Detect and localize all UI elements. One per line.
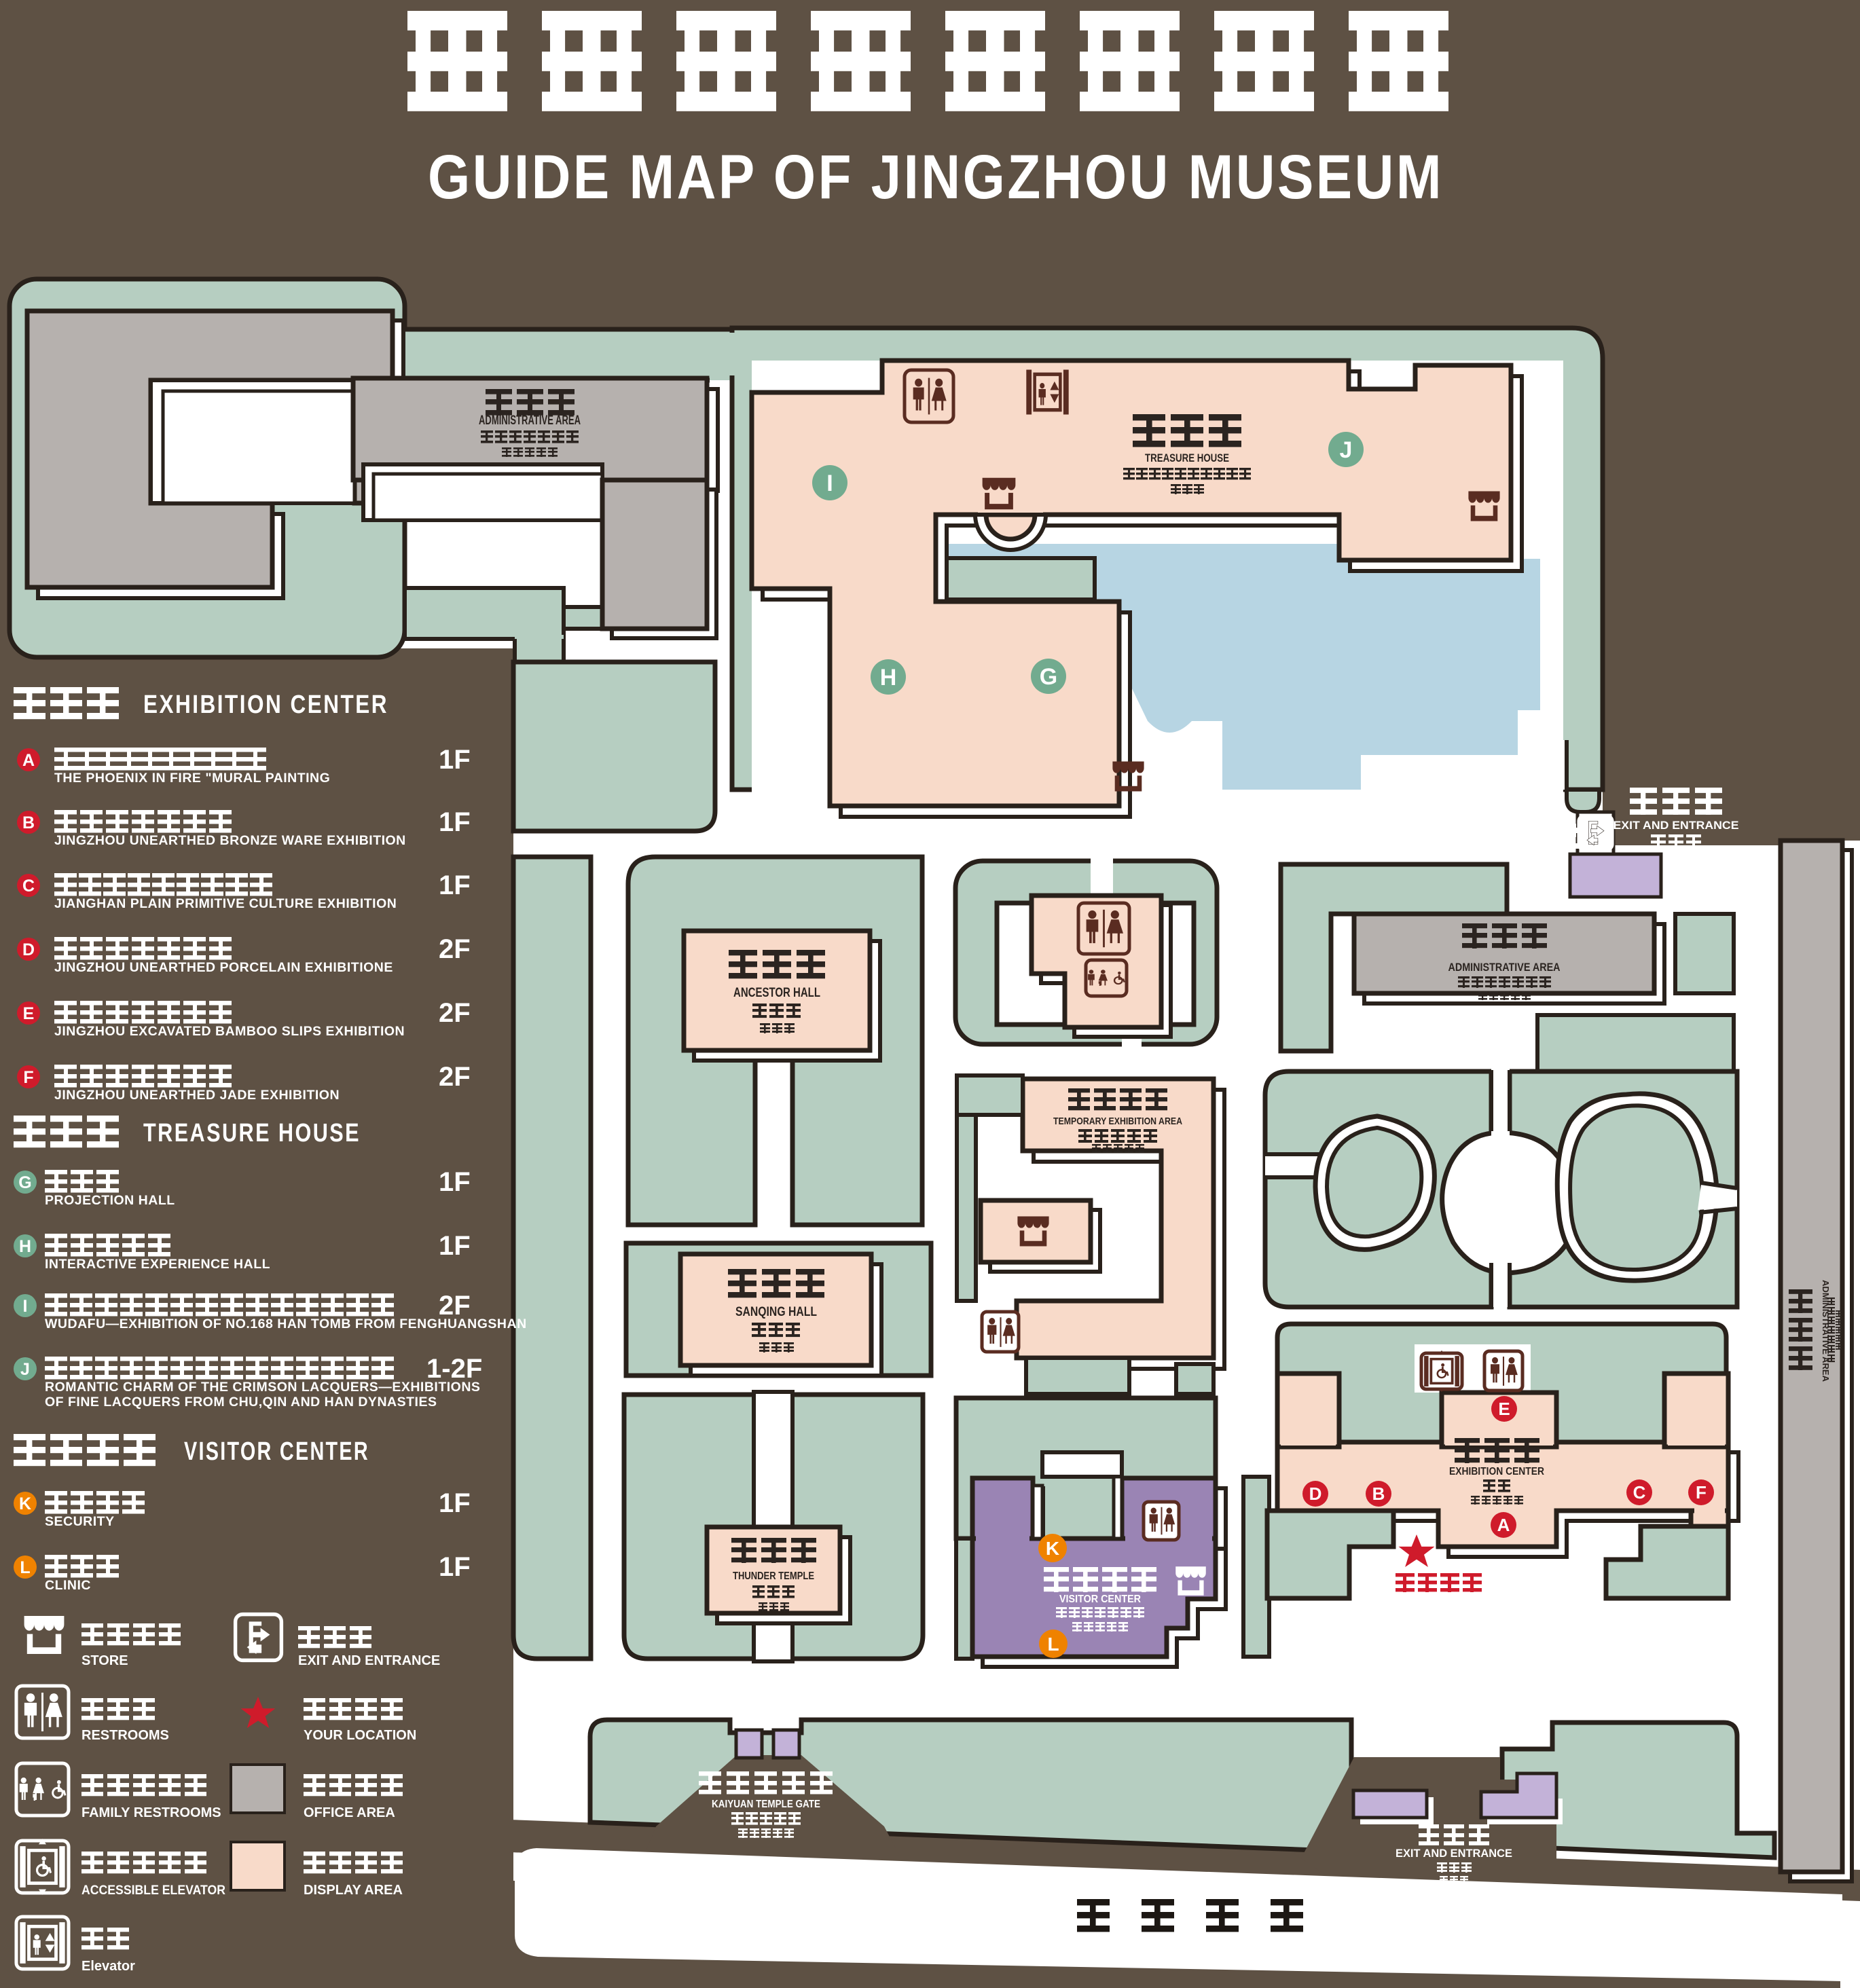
svg-text:EXHIBITION CENTER: EXHIBITION CENTER	[143, 691, 388, 719]
svg-text:INTERACTIVE EXPERIENCE HALL: INTERACTIVE EXPERIENCE HALL	[45, 1257, 270, 1272]
svg-text:K: K	[1046, 1538, 1059, 1559]
svg-text:G: G	[18, 1173, 31, 1192]
svg-text:H: H	[880, 665, 897, 691]
svg-text:ACCESSIBLE ELEVATOR: ACCESSIBLE ELEVATOR	[81, 1883, 225, 1898]
svg-text:1F: 1F	[439, 807, 471, 837]
svg-text:EXHIBITION CENTER: EXHIBITION CENTER	[1449, 1466, 1544, 1477]
svg-text:TEMPORARY EXHIBITION AREA: TEMPORARY EXHIBITION AREA	[1053, 1116, 1182, 1127]
svg-text:JINGZHOU UNEARTHED BRONZE WARE: JINGZHOU UNEARTHED BRONZE WARE EXHIBITIO…	[54, 833, 406, 848]
svg-text:RESTROOMS: RESTROOMS	[81, 1728, 169, 1743]
svg-text:I: I	[826, 471, 833, 496]
svg-text:ADMINISTRATIVE AREA: ADMINISTRATIVE AREA	[1448, 961, 1561, 974]
svg-text:ADMINISTRATIVE AREA: ADMINISTRATIVE AREA	[1821, 1280, 1831, 1382]
svg-text:SECURITY: SECURITY	[45, 1514, 115, 1529]
svg-text:E: E	[1498, 1399, 1510, 1419]
svg-text:Elevator: Elevator	[81, 1959, 135, 1974]
svg-text:VISITOR CENTER: VISITOR CENTER	[1059, 1594, 1141, 1605]
svg-text:2F: 2F	[439, 1062, 471, 1092]
svg-text:D: D	[1309, 1484, 1322, 1504]
svg-text:CLINIC: CLINIC	[45, 1578, 91, 1593]
svg-text:A: A	[1497, 1515, 1510, 1535]
svg-text:TREASURE HOUSE: TREASURE HOUSE	[1145, 452, 1229, 464]
svg-text:I: I	[23, 1297, 28, 1316]
svg-text:SANQING HALL: SANQING HALL	[735, 1305, 817, 1319]
svg-text:1F: 1F	[439, 1167, 471, 1197]
svg-text:ROMANTIC CHARM OF THE CRIMSON: ROMANTIC CHARM OF THE CRIMSON LACQUERS—E…	[45, 1380, 480, 1395]
svg-text:OFFICE AREA: OFFICE AREA	[304, 1805, 395, 1820]
svg-text:VISITOR CENTER: VISITOR CENTER	[184, 1437, 369, 1466]
svg-text:2F: 2F	[439, 934, 471, 964]
svg-text:OF FINE LACQUERS FROM CHU,QIN: OF FINE LACQUERS FROM CHU,QIN AND HAN DY…	[45, 1395, 437, 1410]
svg-text:EXIT AND ENTRANCE: EXIT AND ENTRANCE	[298, 1653, 440, 1668]
svg-text:D: D	[22, 940, 35, 959]
svg-text:1F: 1F	[439, 1231, 471, 1261]
svg-text:YOUR LOCATION: YOUR LOCATION	[304, 1728, 416, 1743]
svg-text:ANCESTOR HALL: ANCESTOR HALL	[733, 986, 820, 1000]
svg-text:A: A	[22, 751, 35, 770]
svg-text:E: E	[23, 1004, 35, 1023]
svg-text:DISPLAY AREA: DISPLAY AREA	[304, 1883, 403, 1898]
svg-text:PROJECTION HALL: PROJECTION HALL	[45, 1193, 175, 1208]
svg-text:L: L	[20, 1558, 30, 1577]
svg-text:GUIDE MAP OF JINGZHOU MUSEUM: GUIDE MAP OF JINGZHOU MUSEUM	[428, 143, 1444, 212]
svg-text:1F: 1F	[439, 1552, 471, 1582]
svg-text:2F: 2F	[439, 1291, 471, 1321]
svg-text:K: K	[19, 1494, 31, 1513]
svg-text:TREASURE HOUSE: TREASURE HOUSE	[143, 1119, 361, 1147]
svg-text:JINGZHOU UNEARTHED PORCELAIN E: JINGZHOU UNEARTHED PORCELAIN EXHIBITIONE	[54, 960, 393, 975]
svg-text:STORE: STORE	[81, 1653, 128, 1668]
svg-text:C: C	[22, 877, 35, 896]
svg-text:THE PHOENIX IN FIRE "MURAL PAI: THE PHOENIX IN FIRE "MURAL PAINTING	[54, 771, 330, 786]
svg-text:L: L	[1047, 1634, 1059, 1655]
svg-text:F: F	[23, 1068, 33, 1087]
svg-text:EXIT AND ENTRANCE: EXIT AND ENTRANCE	[1613, 819, 1739, 832]
svg-text:B: B	[22, 813, 35, 832]
svg-text:JINGZHOU EXCAVATED BAMBOO SLIP: JINGZHOU EXCAVATED BAMBOO SLIPS EXHIBITI…	[54, 1024, 405, 1039]
svg-text:ADMINISTRATIVE AREA: ADMINISTRATIVE AREA	[479, 413, 581, 428]
svg-text:H: H	[19, 1237, 31, 1256]
svg-text:1F: 1F	[439, 1488, 471, 1518]
svg-text:F: F	[1696, 1482, 1707, 1503]
svg-text:2F: 2F	[439, 998, 471, 1028]
svg-text:JIANGHAN PLAIN PRIMITIVE CULTU: JIANGHAN PLAIN PRIMITIVE CULTURE EXHIBIT…	[54, 896, 397, 911]
svg-text:THUNDER TEMPLE: THUNDER TEMPLE	[733, 1570, 814, 1582]
svg-text:B: B	[1372, 1484, 1385, 1504]
svg-text:KAIYUAN TEMPLE GATE: KAIYUAN TEMPLE GATE	[712, 1799, 820, 1810]
svg-text:G: G	[1040, 664, 1057, 690]
svg-text:J: J	[1340, 437, 1353, 463]
svg-text:1F: 1F	[439, 870, 471, 900]
svg-text:EXIT AND ENTRANCE: EXIT AND ENTRANCE	[1396, 1847, 1512, 1860]
svg-text:1-2F: 1-2F	[426, 1354, 482, 1384]
svg-text:FAMILY RESTROOMS: FAMILY RESTROOMS	[81, 1805, 221, 1820]
svg-text:J: J	[20, 1360, 30, 1379]
svg-text:1F: 1F	[439, 745, 471, 775]
svg-text:C: C	[1633, 1482, 1646, 1503]
svg-text:JINGZHOU UNEARTHED JADE EXHIBI: JINGZHOU UNEARTHED JADE EXHIBITION	[54, 1088, 340, 1103]
